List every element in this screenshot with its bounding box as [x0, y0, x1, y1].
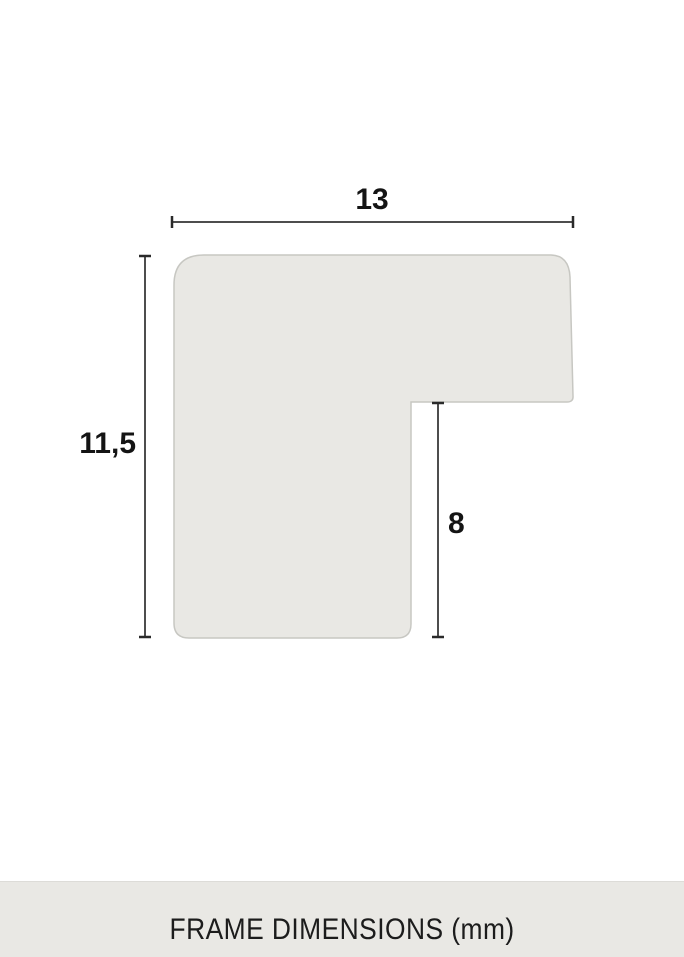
width-dimension-line [172, 216, 573, 228]
height-dimension-line [139, 256, 151, 637]
width-dimension-label: 13 [332, 184, 412, 216]
height-dimension-label: 11,5 [36, 428, 136, 460]
frame-profile-diagram [0, 0, 684, 700]
inner-height-dimension-line [432, 403, 444, 637]
inner-height-dimension-label: 8 [448, 508, 465, 540]
footer-caption-text: FRAME DIMENSIONS (mm) [169, 913, 514, 947]
frame-profile-shape [174, 255, 573, 638]
footer-caption-bar: FRAME DIMENSIONS (mm) [0, 881, 684, 957]
frame-dimensions-page: 13 11,5 8 FRAME DIMENSIONS (mm) [0, 0, 684, 957]
